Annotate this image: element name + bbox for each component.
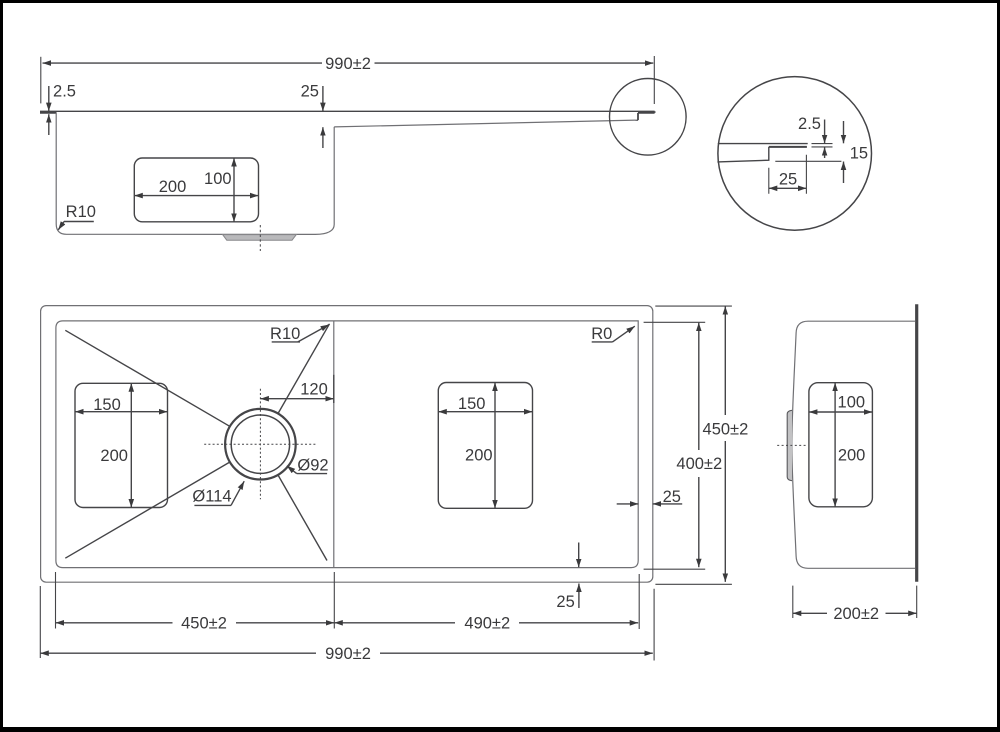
svg-text:450±2: 450±2 — [181, 615, 227, 633]
svg-text:25: 25 — [301, 83, 319, 101]
svg-text:2.5: 2.5 — [798, 115, 821, 133]
svg-text:100: 100 — [204, 170, 232, 188]
svg-text:490±2: 490±2 — [464, 615, 510, 633]
svg-text:15: 15 — [850, 144, 868, 162]
svg-text:400±2: 400±2 — [676, 455, 722, 473]
svg-text:990±2: 990±2 — [325, 55, 371, 73]
svg-text:150: 150 — [458, 395, 486, 413]
svg-text:R10: R10 — [66, 203, 96, 221]
svg-text:2.5: 2.5 — [53, 83, 76, 101]
svg-text:25: 25 — [779, 171, 797, 189]
svg-text:150: 150 — [93, 396, 121, 414]
svg-text:120: 120 — [300, 380, 328, 398]
svg-text:Ø92: Ø92 — [297, 456, 328, 474]
svg-text:25: 25 — [663, 488, 681, 506]
svg-text:Ø114: Ø114 — [192, 487, 231, 505]
svg-text:R0: R0 — [591, 325, 612, 343]
svg-text:990±2: 990±2 — [325, 645, 371, 663]
svg-text:100: 100 — [838, 394, 866, 412]
svg-text:200: 200 — [159, 178, 187, 196]
svg-text:200: 200 — [465, 446, 493, 464]
svg-text:R10: R10 — [270, 325, 300, 343]
svg-text:25: 25 — [556, 593, 574, 611]
svg-text:200±2: 200±2 — [833, 605, 879, 623]
svg-text:200: 200 — [100, 447, 128, 465]
svg-text:200: 200 — [838, 446, 866, 464]
svg-text:450±2: 450±2 — [703, 420, 749, 438]
